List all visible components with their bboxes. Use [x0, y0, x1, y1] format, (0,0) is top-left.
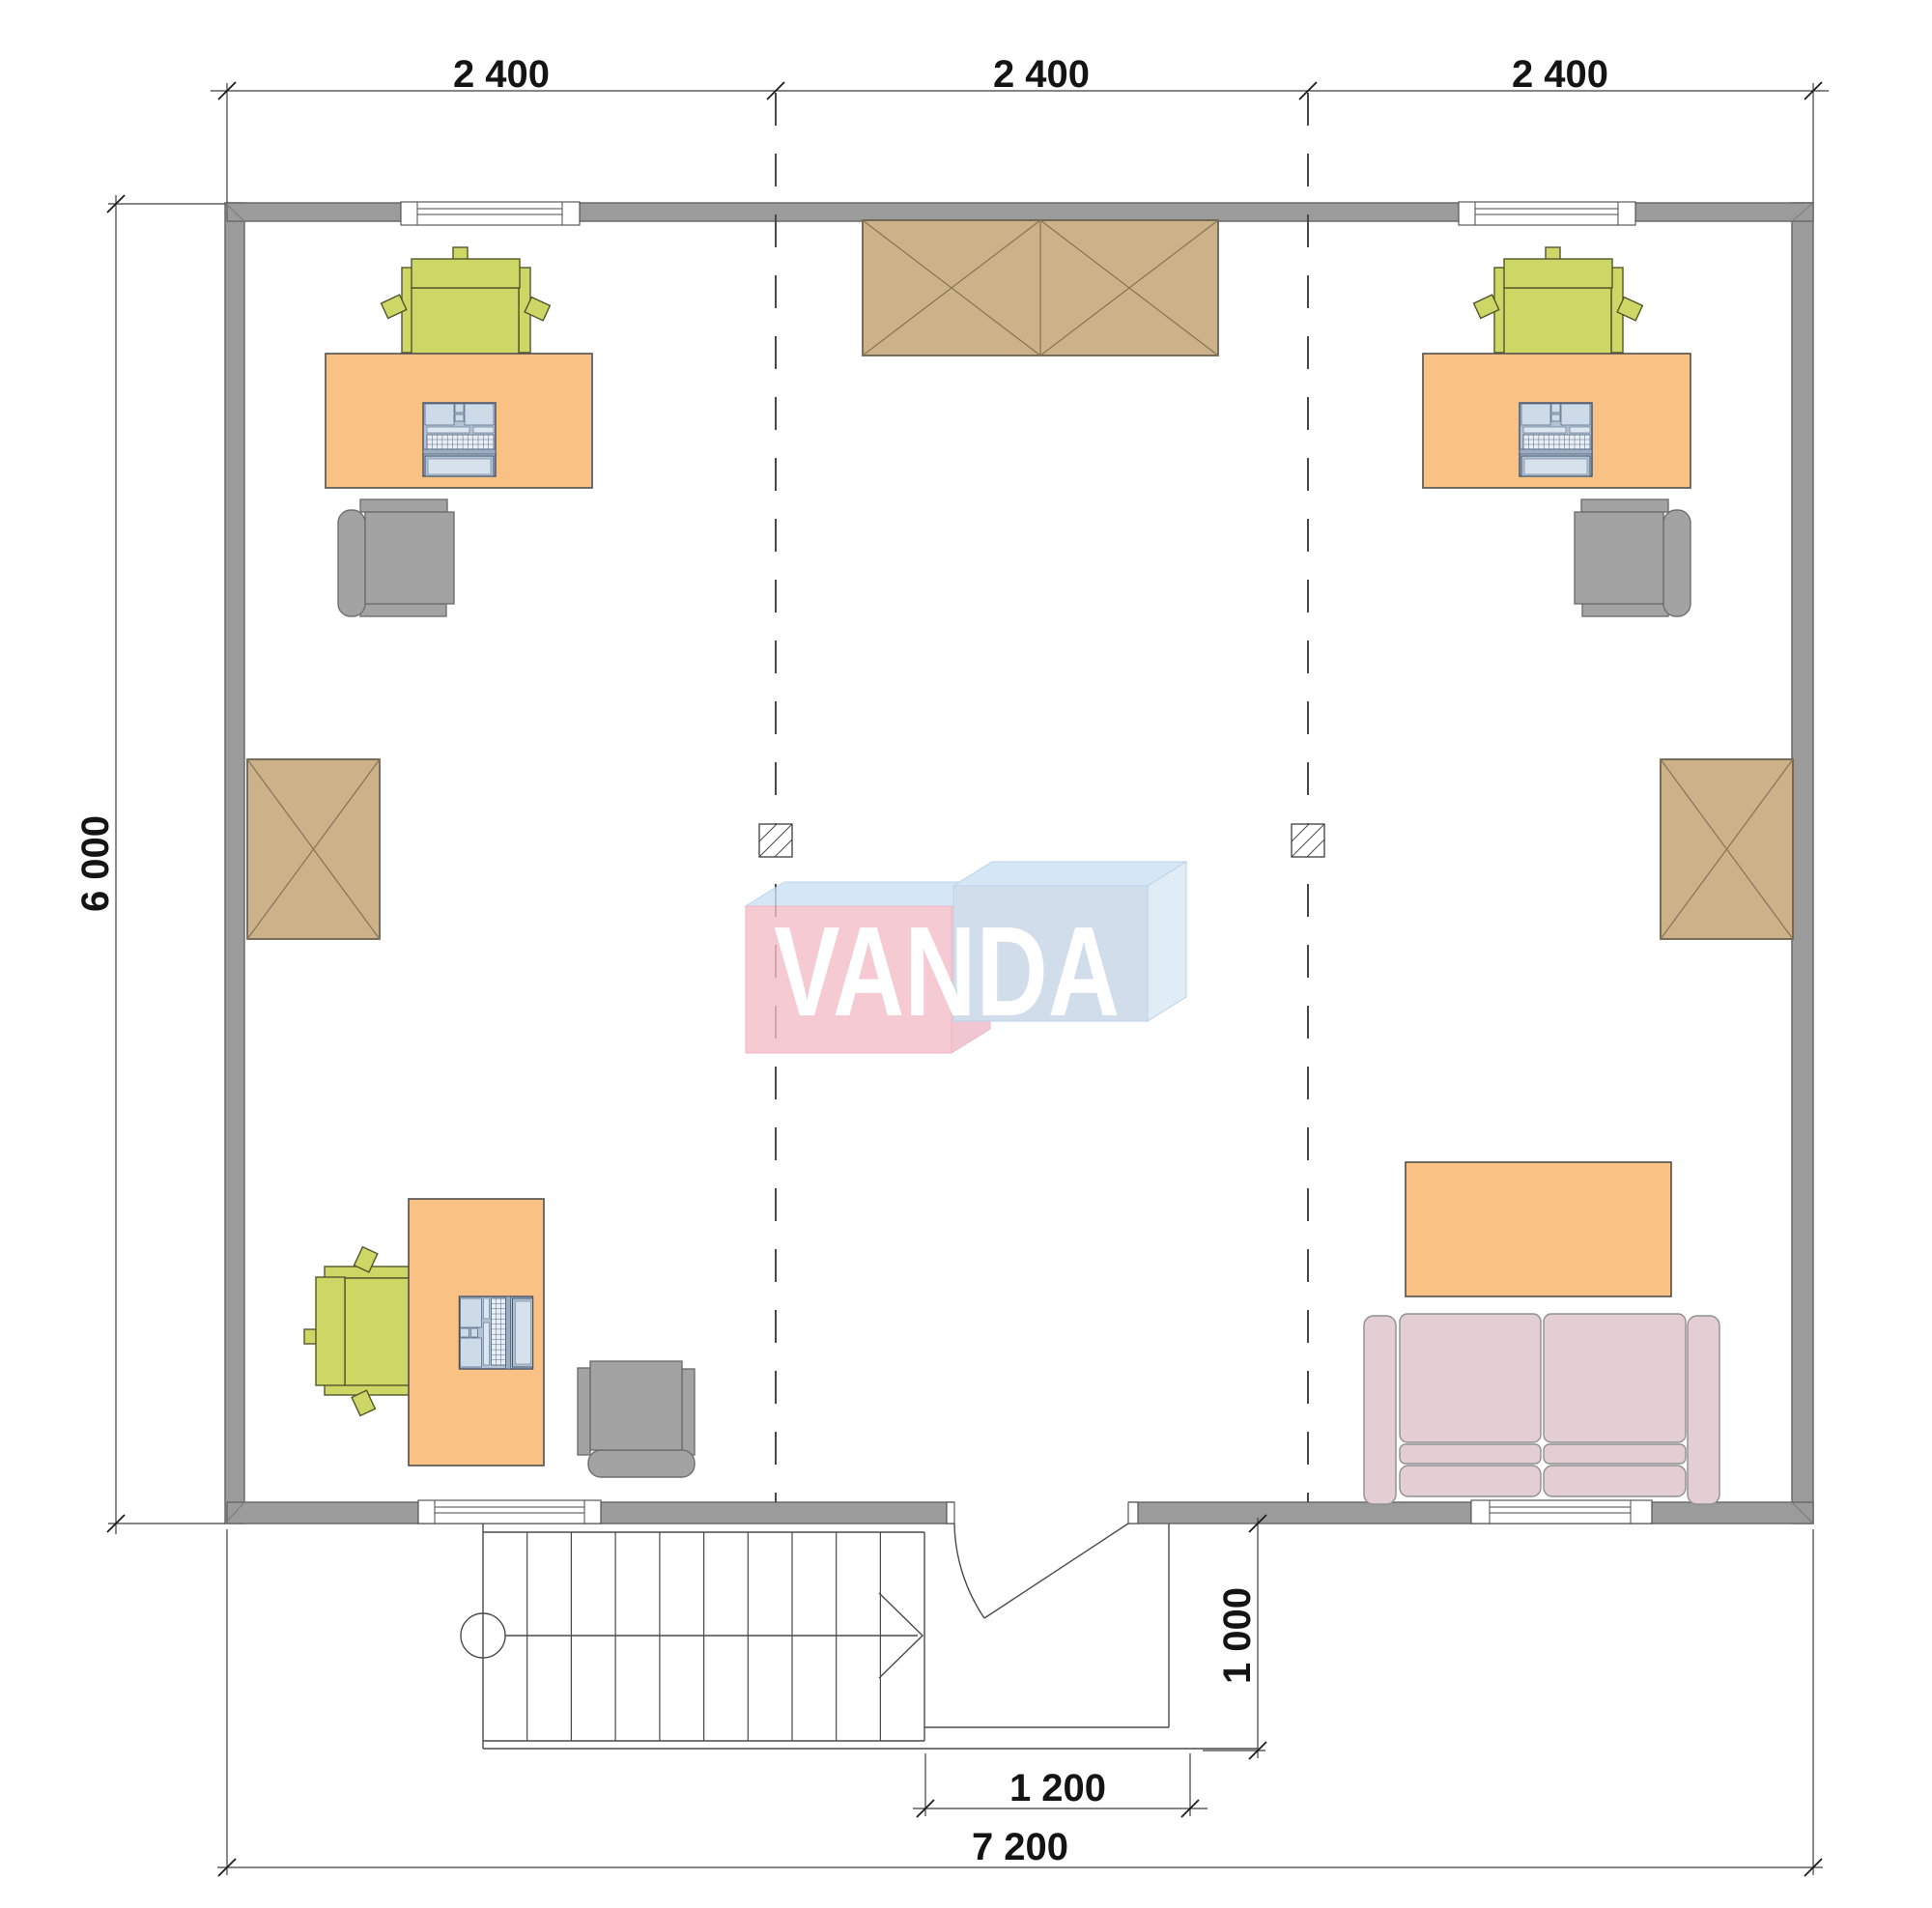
floor-plan-canvas: 2 400 2 400 2 400 6 000 7 200 1 200 1 00… — [0, 0, 1932, 1908]
task-chair-bottom-left — [304, 1247, 412, 1416]
stairs — [461, 1524, 1259, 1749]
laptop-top-right — [1520, 403, 1592, 476]
sofa-seat-right — [1544, 1466, 1686, 1496]
office-chair-bottom-left — [578, 1361, 695, 1477]
laptop-top-left — [423, 403, 496, 476]
floor-plan: 2 400 2 400 2 400 6 000 7 200 1 200 1 00… — [0, 0, 1932, 1908]
sofa — [1364, 1314, 1719, 1504]
dim-label-entry-depth: 1 000 — [1216, 1587, 1259, 1684]
window-top-right — [1459, 202, 1635, 225]
dim-label-bay-3: 2 400 — [1512, 53, 1608, 96]
coffee-table — [1406, 1162, 1671, 1296]
sofa-back-left — [1400, 1314, 1541, 1442]
door-leaf — [984, 1524, 1128, 1618]
dim-label-entry-width: 1 200 — [1009, 1767, 1106, 1809]
watermark-text: VANDA — [774, 900, 1120, 1042]
axis-marker-1 — [759, 824, 792, 857]
dimension-entry-depth: 1 000 — [1203, 1515, 1266, 1759]
window-top-left — [401, 202, 580, 225]
window-bottom-right — [1471, 1500, 1652, 1524]
sofa-arm-right — [1688, 1316, 1719, 1504]
axis-marker-2 — [1292, 824, 1324, 857]
dimension-left: 6 000 — [74, 195, 225, 1534]
wall-left — [225, 203, 244, 1524]
door-jamb-right — [1128, 1502, 1138, 1524]
dim-label-bay-1: 2 400 — [453, 53, 550, 96]
sofa-back-right — [1544, 1314, 1686, 1442]
dim-label-height: 6 000 — [74, 815, 117, 912]
wardrobe-right — [1661, 759, 1793, 939]
office-chair-top-right — [1575, 499, 1690, 616]
task-chair-top-left — [382, 247, 551, 355]
office-chair-top-left — [338, 499, 454, 616]
dimension-bottom-total: 7 200 — [217, 1529, 1823, 1876]
stairs-direction-arrow — [461, 1593, 923, 1678]
wardrobe-left — [247, 759, 380, 939]
dimension-top: 2 400 2 400 2 400 — [211, 53, 1829, 203]
wall-right — [1792, 203, 1813, 1524]
watermark-logo: VANDA — [746, 862, 1186, 1053]
window-bottom-left — [418, 1500, 601, 1524]
entrance-door — [947, 1500, 1138, 1618]
laptop-bottom-left — [460, 1296, 533, 1369]
dimension-entry-width: 1 200 — [913, 1753, 1207, 1817]
door-jamb-left — [947, 1502, 954, 1524]
dim-label-bay-2: 2 400 — [993, 53, 1090, 96]
porch — [924, 1524, 1169, 1727]
wardrobe-top-center — [863, 220, 1218, 356]
sofa-arm-left — [1364, 1316, 1396, 1504]
task-chair-top-right — [1474, 247, 1643, 355]
sofa-seat-left — [1400, 1466, 1541, 1496]
dim-label-total-width: 7 200 — [972, 1826, 1068, 1868]
door-swing-arc — [954, 1524, 984, 1618]
